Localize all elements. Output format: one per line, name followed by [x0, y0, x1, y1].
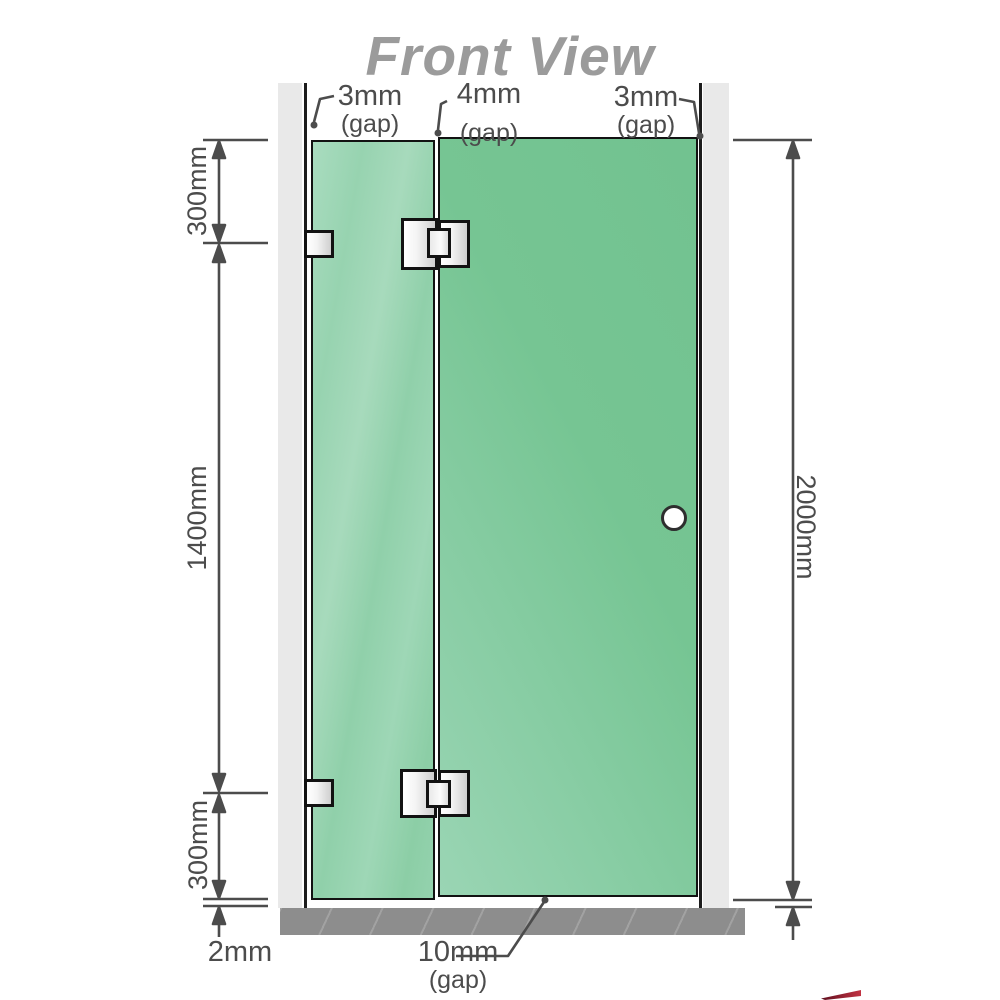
gap-note: (gap) — [608, 113, 684, 138]
gap-note: (gap) — [410, 968, 506, 993]
dimension-label-total-2000mm: 2000mm — [790, 417, 822, 637]
dimension-text: 1400mm — [182, 465, 213, 570]
leader-dots — [311, 122, 704, 904]
dimension-label-bottom-300mm: 300mm — [182, 765, 214, 925]
front-view-diagram: Front View — [0, 0, 1000, 1000]
dimension-label-top-300mm: 300mm — [181, 111, 213, 271]
gap-note: (gap) — [446, 121, 532, 146]
dimension-text: 300mm — [182, 146, 213, 236]
gap-value: 10mm — [410, 938, 506, 967]
left-dimension-chain — [213, 141, 225, 937]
dimension-label-middle-1400mm: 1400mm — [181, 408, 213, 628]
dimension-text: 300mm — [183, 800, 214, 890]
gap-label-bottom: 10mm (gap) — [410, 938, 506, 993]
dimension-text: 2000mm — [791, 474, 822, 579]
leader-lines — [314, 96, 699, 956]
gap-label-left: 3mm (gap) — [330, 82, 410, 137]
dimension-label-floor-2mm: 2mm — [200, 936, 280, 969]
gap-value: 3mm — [608, 83, 684, 112]
gap-label-middle: 4mm (gap) — [446, 80, 532, 146]
gap-value: 3mm — [330, 82, 410, 111]
gap-label-right: 3mm (gap) — [608, 83, 684, 138]
dimension-lines — [0, 0, 1000, 1000]
gap-value: 4mm — [446, 80, 532, 109]
gap-note: (gap) — [330, 112, 410, 137]
